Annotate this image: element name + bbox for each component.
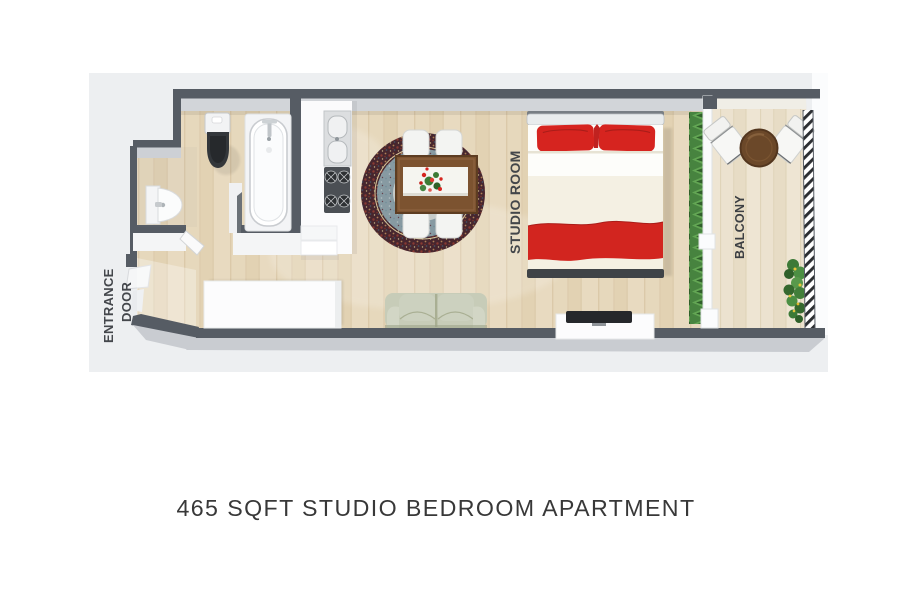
svg-text:STUDIO ROOM: STUDIO ROOM [507,150,523,254]
svg-text:465 SQFT STUDIO BEDROOM APARTM: 465 SQFT STUDIO BEDROOM APARTMENT [176,495,695,521]
svg-text:BALCONY: BALCONY [733,195,747,259]
svg-text:DOOR: DOOR [119,281,134,322]
svg-text:ENTRANCE: ENTRANCE [101,268,116,343]
